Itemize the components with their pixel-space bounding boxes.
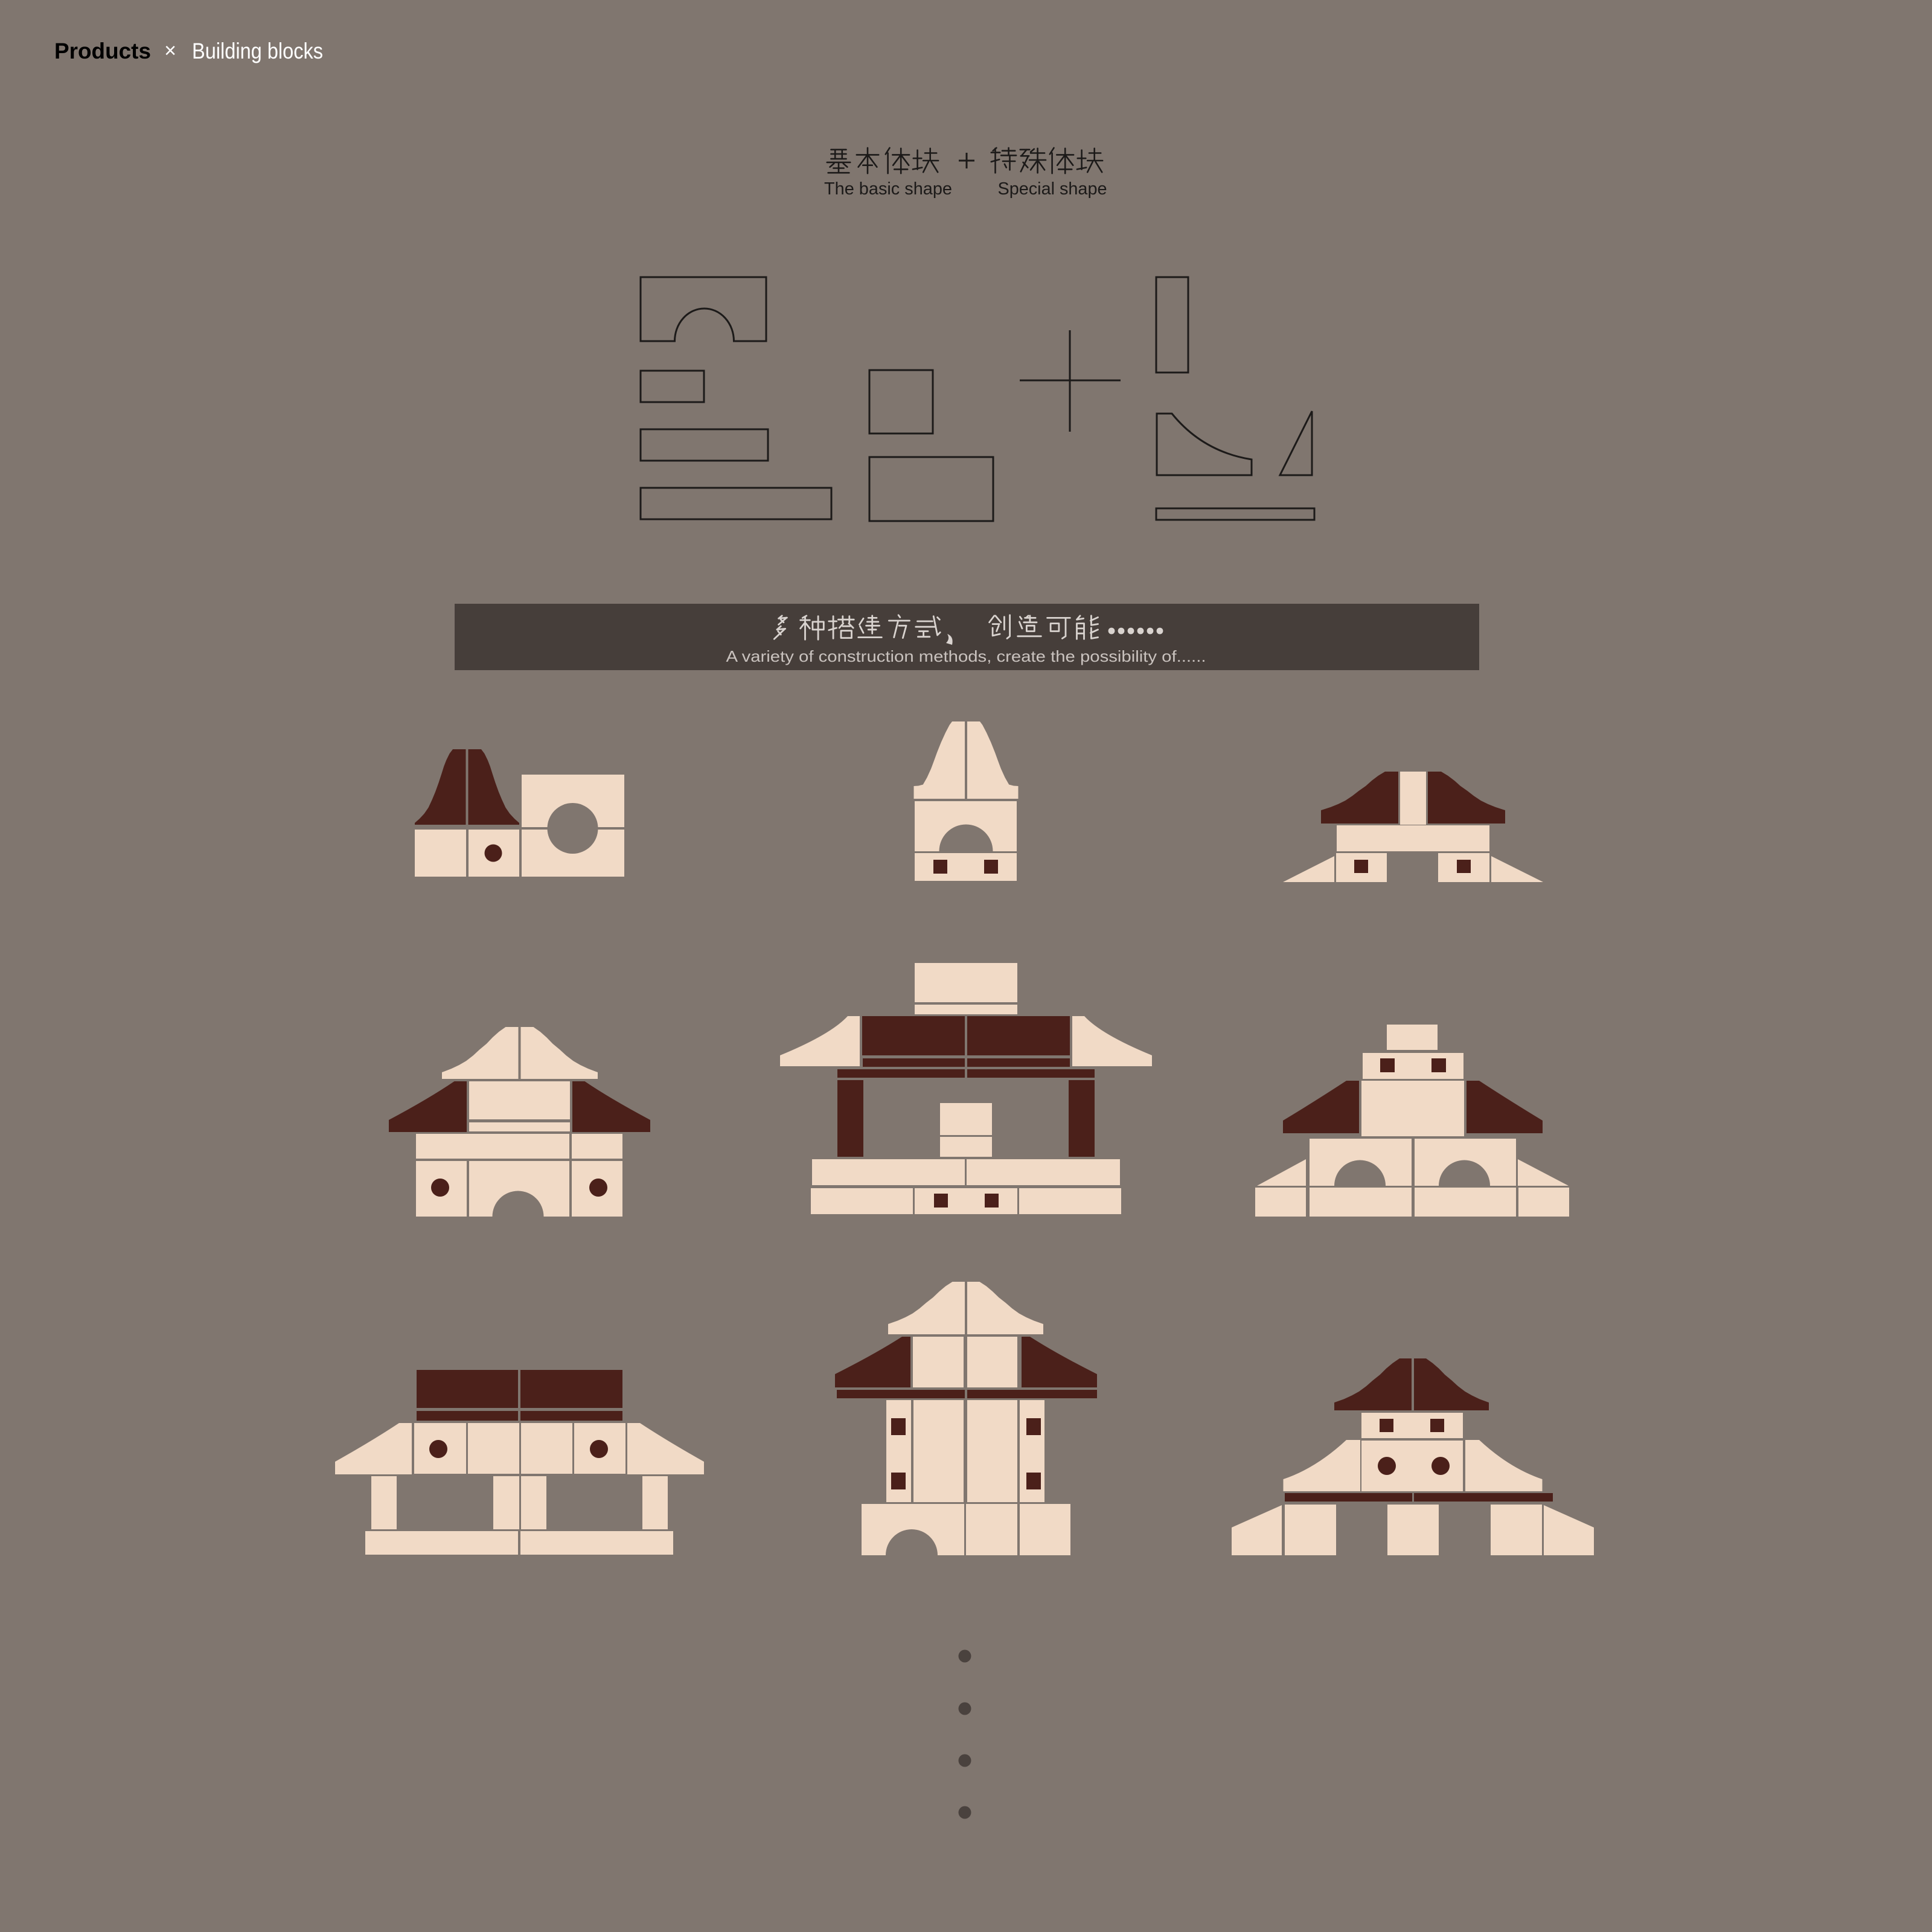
svg-text:Special shape: Special shape [998, 179, 1107, 199]
svg-text:×: × [164, 39, 176, 62]
svg-text:Building blocks: Building blocks [192, 39, 323, 63]
svg-text:A variety of construction meth: A variety of construction methods, creat… [726, 647, 1206, 665]
svg-text:Products: Products [54, 39, 151, 63]
svg-text:The basic shape: The basic shape [824, 179, 952, 199]
